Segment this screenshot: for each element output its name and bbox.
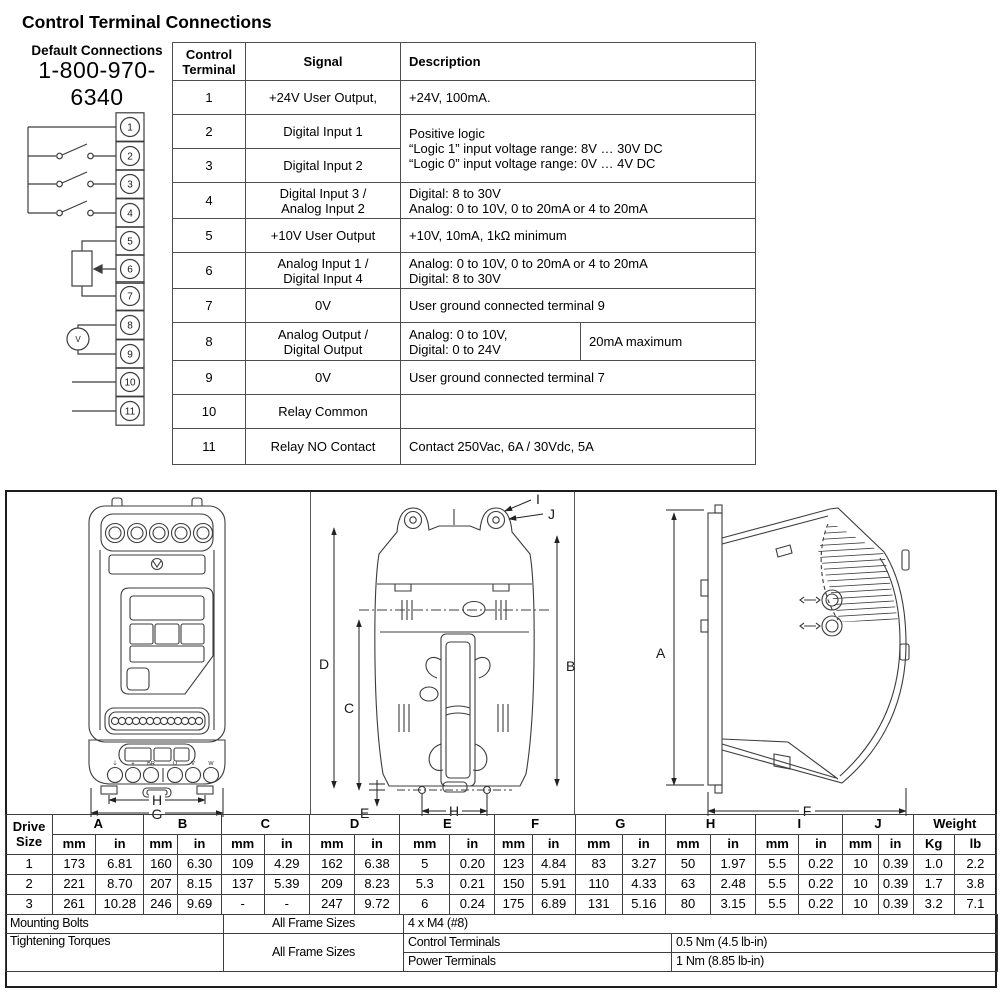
signal: 0V <box>246 289 401 323</box>
description: Analog: 0 to 10V, Digital: 0 to 24V <box>401 323 581 361</box>
manual-page: Control Terminal Connections Default Con… <box>0 0 1000 1000</box>
description: User ground connected terminal 7 <box>401 361 756 395</box>
unit-mm: mm <box>144 835 178 855</box>
power-terminals-label: Power Terminals <box>404 953 672 972</box>
voltmeter-label: V <box>75 335 81 344</box>
side-view-drawing: A F <box>580 492 1000 824</box>
dim-in: 0.22 <box>799 855 843 875</box>
dim-col-e: E <box>400 815 495 835</box>
dim-in: 2.48 <box>711 875 756 895</box>
unit-in: in <box>178 835 221 855</box>
terminal-circle-number: 2 <box>127 152 133 163</box>
terminal-number: 6 <box>173 253 246 289</box>
svg-text:BR: BR <box>147 761 155 767</box>
description: Contact 250Vac, 6A / 30Vdc, 5A <box>401 429 756 465</box>
dim-col-j: J <box>843 815 913 835</box>
unit-mm: mm <box>495 835 532 855</box>
terminal-circle-number: 10 <box>124 378 136 389</box>
dimension-table: Drive SizeABCDEFGHIJWeightmminmminmminmm… <box>5 814 997 915</box>
dim-in: 3.27 <box>622 855 665 875</box>
control-terminals-label: Control Terminals <box>404 934 672 953</box>
dim-mm: 123 <box>495 855 532 875</box>
table-row: 4 Digital Input 3 / Analog Input 2 Digit… <box>173 183 756 219</box>
dim-mm: 10 <box>843 895 878 915</box>
signal: Relay NO Contact <box>246 429 401 465</box>
unit-mm: mm <box>843 835 878 855</box>
control-terminals-value: 0.5 Nm (4.5 lb-in) <box>672 934 998 953</box>
svg-text:V: V <box>191 761 195 767</box>
svg-text:⏚: ⏚ <box>112 760 118 767</box>
terminal-circle-number: 7 <box>127 292 133 303</box>
dim-mm: 109 <box>221 855 264 875</box>
description: +10V, 10mA, 1kΩ minimum <box>401 219 756 253</box>
dim-mm: 137 <box>221 875 264 895</box>
signal: Digital Input 3 / Analog Input 2 <box>246 183 401 219</box>
tightening-torques-scope: All Frame Sizes <box>224 934 404 972</box>
dim-mm: 246 <box>144 895 178 915</box>
signal: Analog Output / Digital Output <box>246 323 401 361</box>
terminal-number: 7 <box>173 289 246 323</box>
dim-units-row: mminmminmminmminmminmminmminmminmminmmin… <box>6 835 997 855</box>
table-row: 5 +10V User Output +10V, 10mA, 1kΩ minim… <box>173 219 756 253</box>
terminal-number: 5 <box>173 219 246 253</box>
terminal-number: 11 <box>173 429 246 465</box>
dim-label-j: J <box>548 506 555 522</box>
signal: Analog Input 1 / Digital Input 4 <box>246 253 401 289</box>
dim-col-d: D <box>309 815 399 835</box>
terminal-number: 9 <box>173 361 246 395</box>
terminal-number: 1 <box>173 81 246 115</box>
description: User ground connected terminal 9 <box>401 289 756 323</box>
dim-in: 4.29 <box>264 855 309 875</box>
dim-col-weight: Weight <box>913 815 996 835</box>
signal: Digital Input 1 <box>246 115 401 149</box>
dim-in: 0.22 <box>799 895 843 915</box>
dim-mm: 5.5 <box>756 875 799 895</box>
table-row: Mounting Bolts All Frame Sizes 4 x M4 (#… <box>6 915 998 934</box>
signal: +10V User Output <box>246 219 401 253</box>
dim-mm: 6 <box>400 895 450 915</box>
dim-in: 0.39 <box>878 895 913 915</box>
weight-lb: 2.2 <box>954 855 996 875</box>
dim-col-g: G <box>575 815 665 835</box>
terminal-number: 10 <box>173 395 246 429</box>
unit-in: in <box>355 835 400 855</box>
unit-kg: Kg <box>913 835 954 855</box>
col-header-description: Description <box>401 43 756 81</box>
back-view-drawing: D C B E H I J <box>307 492 597 824</box>
unit-mm: mm <box>575 835 622 855</box>
dim-mm: 10 <box>843 855 878 875</box>
terminal-number: 2 <box>173 115 246 149</box>
svg-text:W: W <box>208 761 214 767</box>
keypad <box>121 588 213 694</box>
page-title: Control Terminal Connections <box>22 12 272 33</box>
unit-in: in <box>711 835 756 855</box>
unit-lb: lb <box>954 835 996 855</box>
table-row: 11 Relay NO Contact Contact 250Vac, 6A /… <box>173 429 756 465</box>
dim-mm: 5.5 <box>756 895 799 915</box>
power-terminals-value: 1 Nm (8.85 lb-in) <box>672 953 998 972</box>
dim-in: 4.84 <box>532 855 575 875</box>
dim-in: 3.15 <box>711 895 756 915</box>
switch-digital-input-2 <box>28 172 116 187</box>
weight-kg: 1.0 <box>913 855 954 875</box>
wiring-diagram: V 1234567891011 <box>20 103 172 435</box>
table-row: 8 Analog Output / Digital Output Analog:… <box>173 323 756 361</box>
dim-col-c: C <box>221 815 309 835</box>
dim-in: 5.16 <box>622 895 665 915</box>
dim-in: 5.39 <box>264 875 309 895</box>
dim-label-c: C <box>344 700 354 716</box>
mounting-bolts-scope: All Frame Sizes <box>224 915 404 934</box>
weight-lb: 3.8 <box>954 875 996 895</box>
unit-in: in <box>264 835 309 855</box>
unit-in: in <box>532 835 575 855</box>
dim-data-row: 326110.282469.69--2479.7260.241756.89131… <box>6 895 997 915</box>
unit-in: in <box>878 835 913 855</box>
unit-in: in <box>96 835 144 855</box>
control-terminal-strip <box>111 717 202 724</box>
dim-in: 0.39 <box>878 855 913 875</box>
table-row: 7 0V User ground connected terminal 9 <box>173 289 756 323</box>
terminal-circle-number: 5 <box>127 237 133 248</box>
terminal-circle-number: 6 <box>127 265 133 276</box>
dim-mm: 173 <box>53 855 96 875</box>
description: Positive logic “Logic 1” input voltage r… <box>401 115 756 183</box>
dim-in: 6.38 <box>355 855 400 875</box>
dim-mm: 261 <box>53 895 96 915</box>
signal: +24V User Output, <box>246 81 401 115</box>
dim-in: 8.23 <box>355 875 400 895</box>
dim-in: 6.81 <box>96 855 144 875</box>
dim-label-b: B <box>566 658 575 674</box>
power-terminal-strip <box>108 768 219 783</box>
dim-mm: 131 <box>575 895 622 915</box>
terminal-circle-number: 9 <box>127 350 133 361</box>
switch-digital-input-1 <box>28 144 116 159</box>
dim-mm: 5.5 <box>756 855 799 875</box>
dim-in: 0.24 <box>450 895 495 915</box>
dim-col-b: B <box>144 815 221 835</box>
dim-data-row: 11736.811606.301094.291626.3850.201234.8… <box>6 855 997 875</box>
unit-mm: mm <box>756 835 799 855</box>
dim-in: 1.97 <box>711 855 756 875</box>
description <box>401 395 756 429</box>
dim-in: 6.30 <box>178 855 221 875</box>
dim-header-row: Drive SizeABCDEFGHIJWeight <box>6 815 997 835</box>
knobs <box>800 590 842 636</box>
dim-in: 9.72 <box>355 895 400 915</box>
dim-mm: 110 <box>575 875 622 895</box>
description: Digital: 8 to 30V Analog: 0 to 10V, 0 to… <box>401 183 756 219</box>
dim-mm: 160 <box>144 855 178 875</box>
dim-mm: 175 <box>495 895 532 915</box>
dim-mm: 207 <box>144 875 178 895</box>
terminal-circle-number: 3 <box>127 180 133 191</box>
dim-in: 10.28 <box>96 895 144 915</box>
svg-text:U: U <box>173 761 177 767</box>
table-row: Tightening Torques All Frame Sizes Contr… <box>6 934 998 953</box>
table-row: 1 +24V User Output, +24V, 100mA. <box>173 81 756 115</box>
unit-mm: mm <box>309 835 354 855</box>
dim-in: 8.70 <box>96 875 144 895</box>
dim-data-row: 22218.702078.151375.392098.235.30.211505… <box>6 875 997 895</box>
unit-mm: mm <box>53 835 96 855</box>
switch-digital-input-3 <box>28 201 116 216</box>
drive-size: 3 <box>6 895 53 915</box>
col-header-signal: Signal <box>246 43 401 81</box>
dim-in: 4.33 <box>622 875 665 895</box>
dim-mm: 80 <box>665 895 710 915</box>
signal: 0V <box>246 361 401 395</box>
dim-label-d: D <box>319 656 329 672</box>
tightening-torques-label: Tightening Torques <box>6 934 224 972</box>
dim-mm: 10 <box>843 875 878 895</box>
dim-mm: 63 <box>665 875 710 895</box>
dim-mm: 247 <box>309 895 354 915</box>
dim-in: 0.22 <box>799 875 843 895</box>
dim-col-a: A <box>53 815 144 835</box>
mounting-table: Mounting Bolts All Frame Sizes 4 x M4 (#… <box>5 914 998 972</box>
unit-mm: mm <box>400 835 450 855</box>
terminal-circle-number: 8 <box>127 321 133 332</box>
dim-mm: 150 <box>495 875 532 895</box>
terminal-circle-number: 11 <box>125 407 136 418</box>
unit-mm: mm <box>221 835 264 855</box>
mounting-bolts-label: Mounting Bolts <box>6 915 224 934</box>
unit-in: in <box>622 835 665 855</box>
dim-mm: 162 <box>309 855 354 875</box>
dim-label-i: I <box>536 492 540 507</box>
wire-bus <box>28 127 116 213</box>
terminal-block: 1234567891011 <box>116 113 144 425</box>
table-row: 9 0V User ground connected terminal 7 <box>173 361 756 395</box>
dim-label-a: A <box>656 645 666 661</box>
dim-col-i: I <box>756 815 843 835</box>
dim-col-h: H <box>665 815 755 835</box>
terminal-circle-number: 4 <box>127 209 133 220</box>
drive-size: 2 <box>6 875 53 895</box>
dim-in: - <box>264 895 309 915</box>
dim-in: 0.21 <box>450 875 495 895</box>
signal: Digital Input 2 <box>246 149 401 183</box>
mounting-bolts-value: 4 x M4 (#8) <box>404 915 998 934</box>
table-row: 6 Analog Input 1 / Digital Input 4 Analo… <box>173 253 756 289</box>
terminal-number: 3 <box>173 149 246 183</box>
weight-kg: 3.2 <box>913 895 954 915</box>
weight-kg: 1.7 <box>913 875 954 895</box>
unit-mm: mm <box>665 835 710 855</box>
terminal-number: 8 <box>173 323 246 361</box>
dim-in: 0.20 <box>450 855 495 875</box>
dim-mm: 209 <box>309 875 354 895</box>
dim-mm: 221 <box>53 875 96 895</box>
dim-in: 5.91 <box>532 875 575 895</box>
dim-mm: 83 <box>575 855 622 875</box>
dimensions-panel: ⏚ + BR U V W H G <box>5 490 997 988</box>
dim-in: 0.39 <box>878 875 913 895</box>
dim-col-drive-size: Drive Size <box>6 815 53 855</box>
dim-mm: - <box>221 895 264 915</box>
description: +24V, 100mA. <box>401 81 756 115</box>
description: Analog: 0 to 10V, 0 to 20mA or 4 to 20mA… <box>401 253 756 289</box>
dim-col-f: F <box>495 815 575 835</box>
table-row: 2 Digital Input 1 Positive logic “Logic … <box>173 115 756 149</box>
terminal-number: 4 <box>173 183 246 219</box>
unit-in: in <box>450 835 495 855</box>
signal: Relay Common <box>246 395 401 429</box>
col-header-control-terminal: Control Terminal <box>173 43 246 81</box>
dim-mm: 5.3 <box>400 875 450 895</box>
dim-in: 6.89 <box>532 895 575 915</box>
dim-mm: 5 <box>400 855 450 875</box>
terminal-table: Control Terminal Signal Description 1 +2… <box>172 42 756 465</box>
default-connections-label: Default Connections <box>22 43 172 58</box>
unit-in: in <box>799 835 843 855</box>
table-row: 10 Relay Common <box>173 395 756 429</box>
terminal-circle-number: 1 <box>127 123 133 134</box>
description-extra: 20mA maximum <box>581 323 756 361</box>
dim-in: 8.15 <box>178 875 221 895</box>
drive-size: 1 <box>6 855 53 875</box>
potentiometer <box>72 241 116 296</box>
dim-in: 9.69 <box>178 895 221 915</box>
svg-text:+: + <box>131 761 134 767</box>
dim-mm: 50 <box>665 855 710 875</box>
weight-lb: 7.1 <box>954 895 996 915</box>
